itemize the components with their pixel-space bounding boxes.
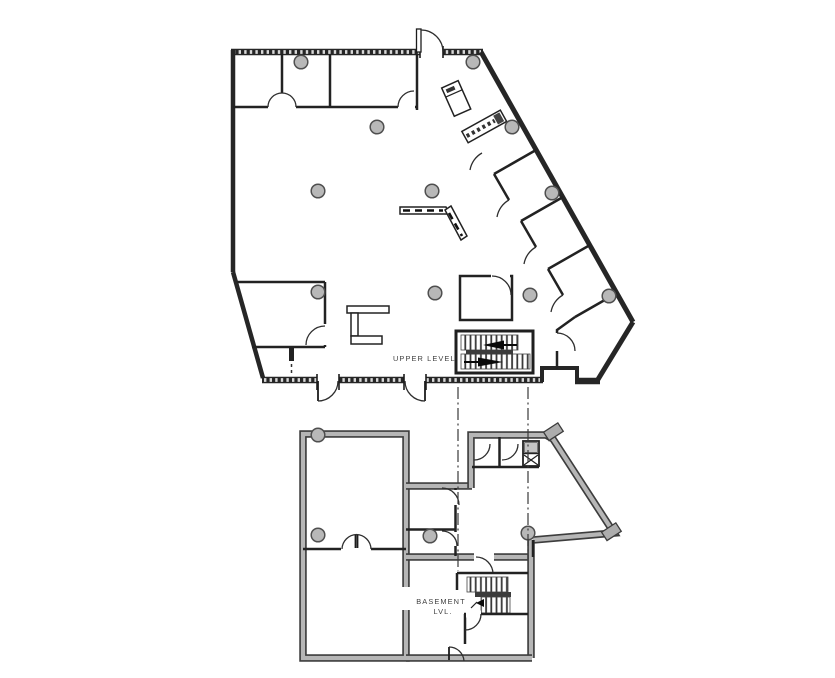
column-marker — [311, 184, 325, 198]
basement-plan: BASEMENT LVL. — [303, 423, 621, 661]
office-partition — [548, 245, 590, 269]
column-marker — [602, 289, 616, 303]
center-room — [460, 271, 512, 320]
column-marker — [311, 428, 325, 442]
stair-landing-rail — [475, 592, 511, 597]
office-partition — [521, 197, 563, 221]
column-marker — [425, 184, 439, 198]
upper-exterior-walls — [231, 50, 633, 382]
wall-opening — [401, 587, 412, 610]
office-partition — [494, 150, 536, 174]
diagonal-offices — [470, 150, 617, 317]
column-marker — [423, 529, 437, 543]
basement-level-label: BASEMENT — [416, 597, 465, 606]
stair-flight — [481, 597, 510, 613]
wall-corner-cap — [602, 523, 622, 541]
column-marker — [311, 528, 325, 542]
top-entry-door — [417, 29, 444, 59]
door-swing-arc — [557, 333, 575, 351]
upper-level-plan: UPPER LEVEL — [231, 29, 633, 401]
column-marker — [294, 55, 308, 69]
column-marker — [505, 120, 519, 134]
southeast-room — [557, 317, 575, 369]
basement-level-label-line2: LVL. — [433, 607, 452, 616]
stair-landing-rail — [466, 350, 513, 355]
basement-interior-walls — [303, 437, 539, 557]
stair-direction-arrow-icon — [476, 599, 484, 607]
column-marker — [523, 288, 537, 302]
door-swing-arc — [524, 247, 536, 264]
elevator-shaft — [523, 441, 539, 466]
upper-level-label: UPPER LEVEL — [393, 354, 456, 363]
upper-stairs — [456, 331, 533, 373]
column-marker — [311, 285, 325, 299]
bent-counter — [400, 206, 467, 240]
upper-interior-walls — [233, 54, 418, 113]
floor-plan-canvas: BASEMENT LVL. — [0, 0, 835, 678]
door-leaf — [417, 29, 422, 52]
door-swing-arc — [551, 295, 563, 312]
column-marker — [545, 186, 559, 200]
door-swing-arc — [497, 200, 509, 217]
wall-corner-cap — [544, 423, 564, 441]
basement-stairs — [457, 573, 528, 614]
basement-exterior-walls — [303, 423, 621, 658]
door-swing-arc — [470, 153, 482, 170]
stair-flight — [461, 335, 518, 350]
wall-post — [289, 348, 294, 361]
shaft-cell — [525, 443, 538, 453]
double-door — [341, 535, 371, 554]
column-marker — [466, 55, 480, 69]
basement-storage-room — [449, 611, 481, 662]
stair-flight — [467, 577, 508, 592]
floor-plan-sheet: BASEMENT LVL. — [0, 0, 835, 678]
wall-notch — [542, 368, 577, 382]
copier-desk — [442, 81, 471, 117]
door-swing-arcs — [474, 444, 518, 460]
column-marker — [428, 286, 442, 300]
work-counter — [462, 110, 507, 143]
reception-desk — [347, 306, 389, 344]
column-marker — [370, 120, 384, 134]
